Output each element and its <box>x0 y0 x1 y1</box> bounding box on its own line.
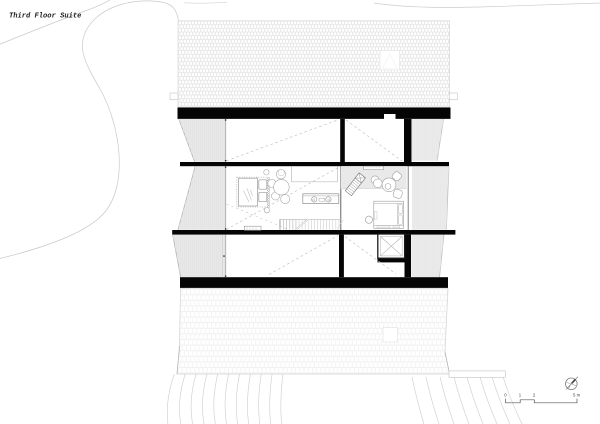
svg-text:Third Floor Suite: Third Floor Suite <box>9 13 81 21</box>
svg-text:5 m: 5 m <box>573 393 581 398</box>
